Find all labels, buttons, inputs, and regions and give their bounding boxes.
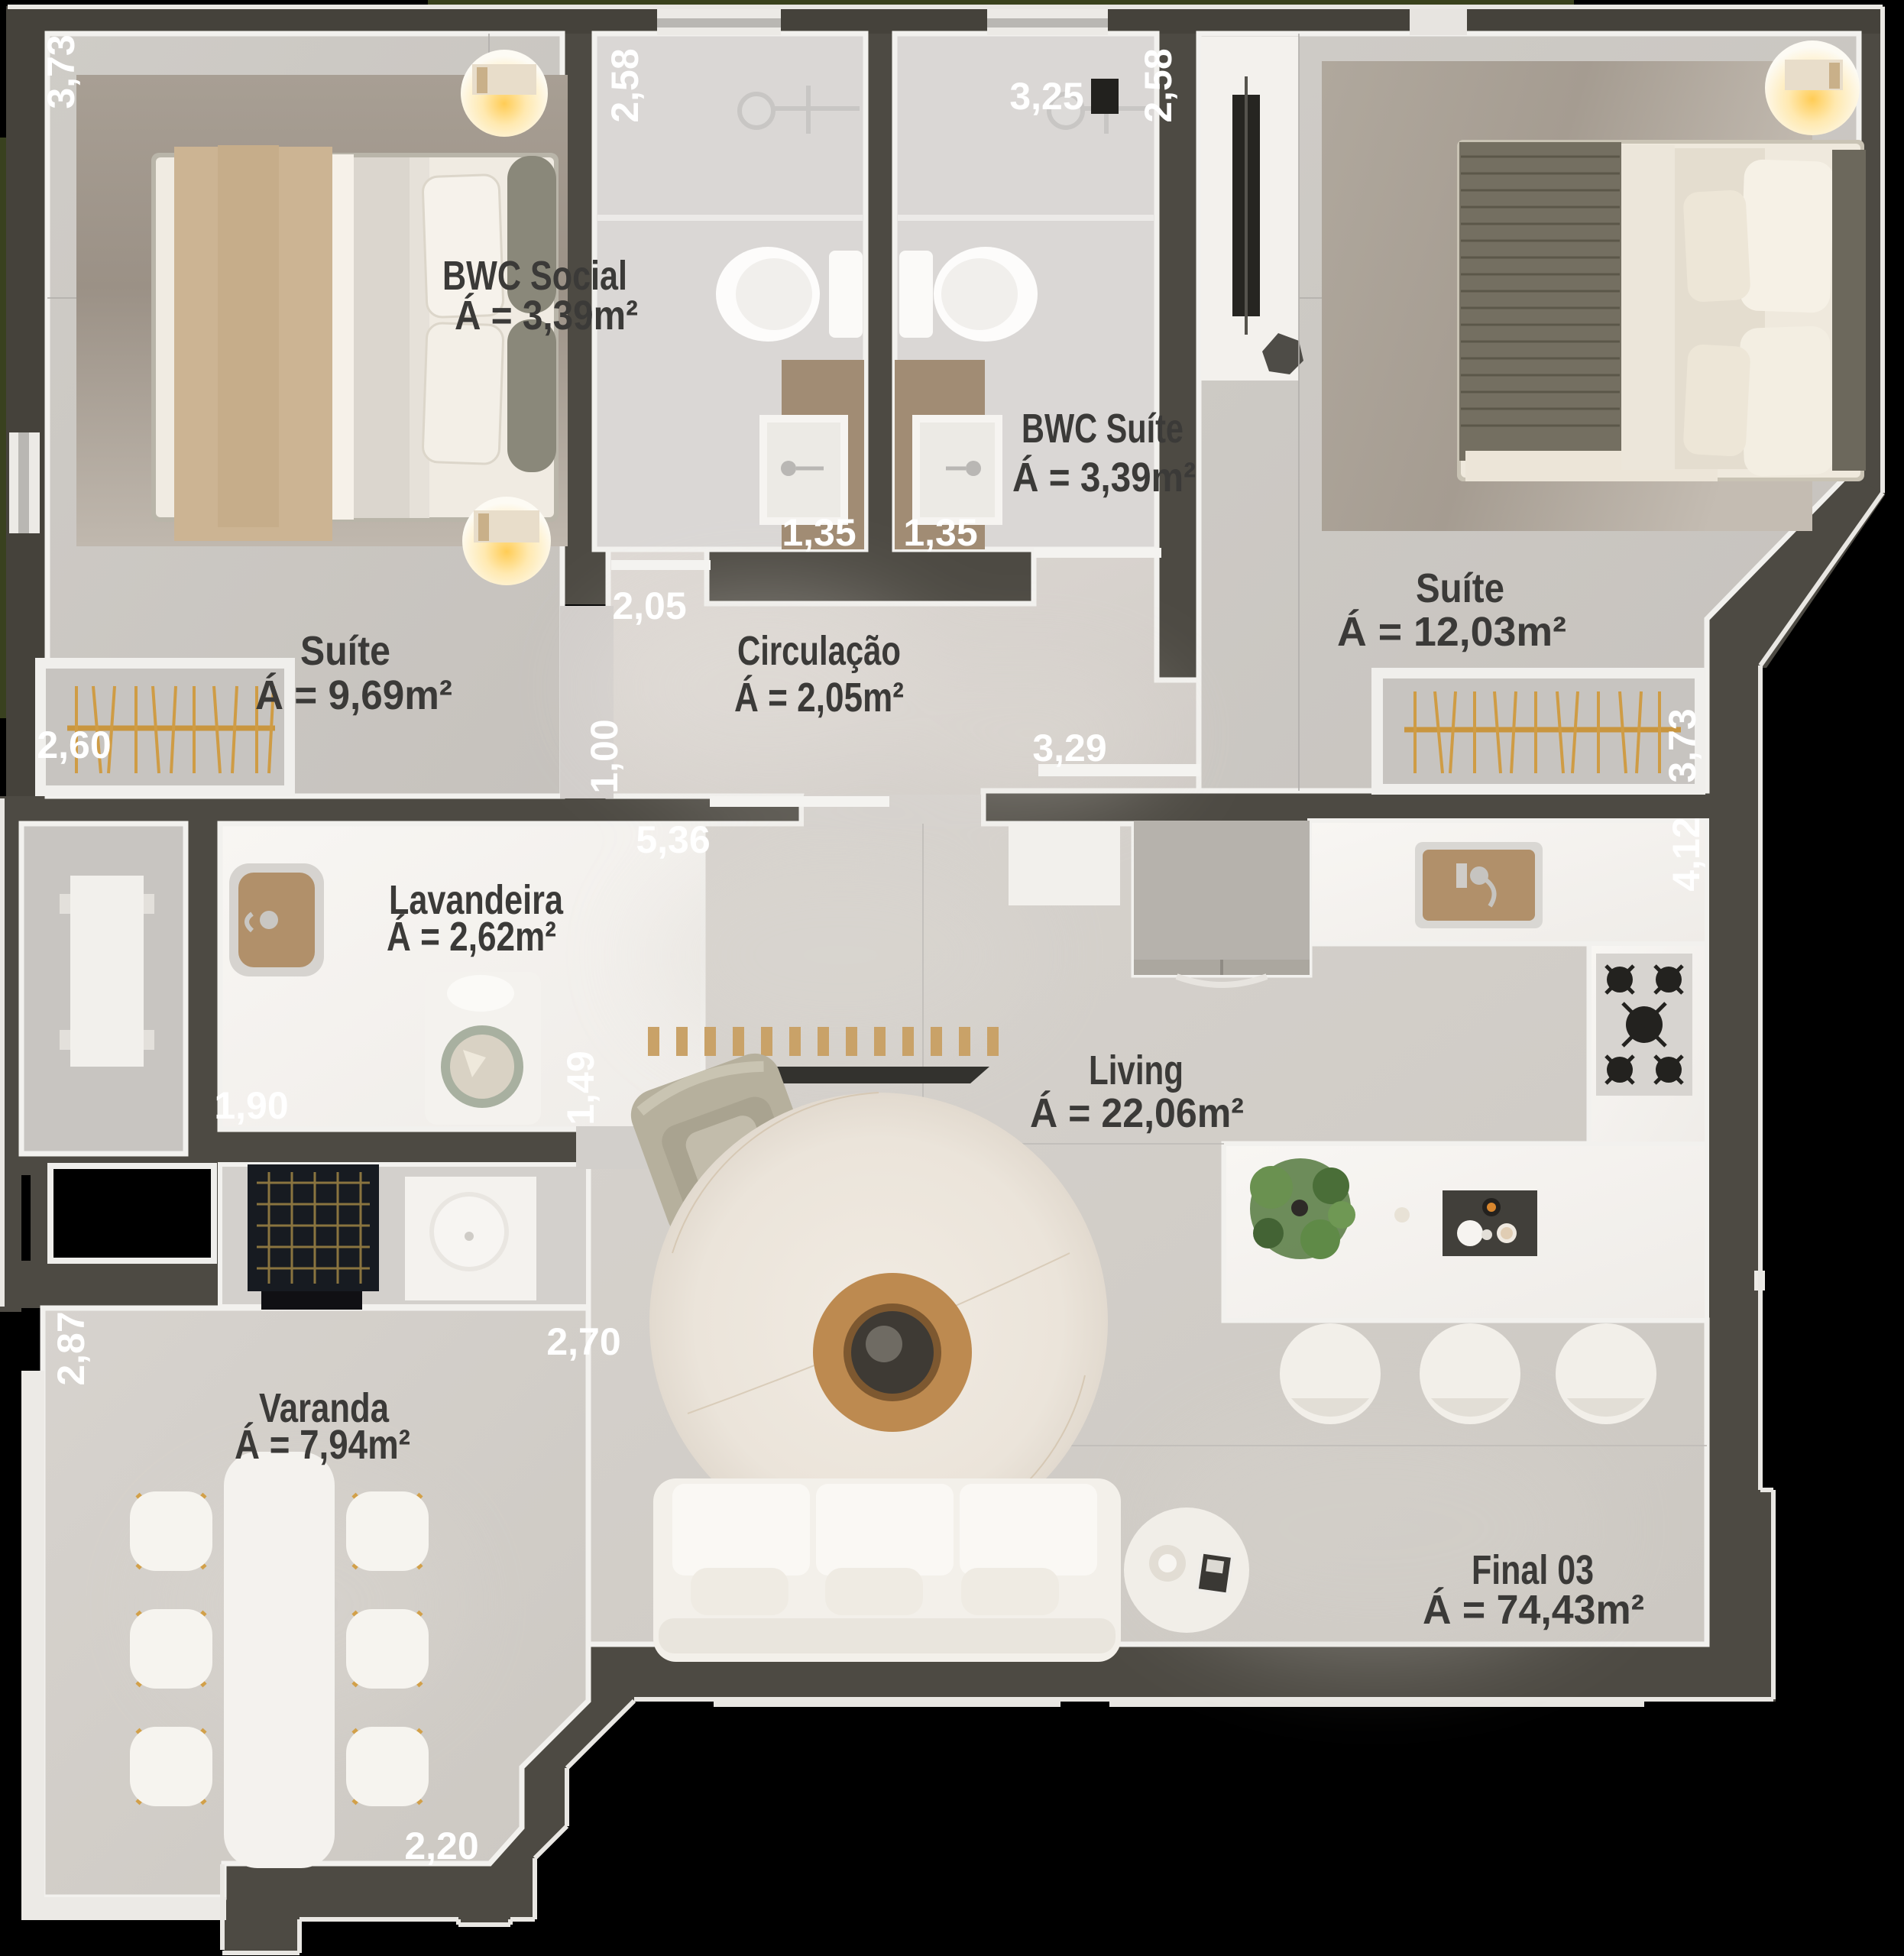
svg-text:3,29: 3,29 (1032, 727, 1106, 769)
svg-text:5,36: 5,36 (636, 818, 710, 861)
svg-text:Suíte: Suíte (300, 628, 390, 674)
svg-text:BWC Social: BWC Social (442, 253, 627, 299)
svg-text:1,49: 1,49 (559, 1051, 602, 1125)
svg-text:2,70: 2,70 (546, 1320, 620, 1363)
svg-text:Living: Living (1089, 1048, 1184, 1093)
svg-text:2,87: 2,87 (50, 1311, 92, 1385)
svg-text:1,35: 1,35 (903, 511, 977, 554)
svg-text:4,12: 4,12 (1665, 817, 1708, 891)
svg-text:1,00: 1,00 (583, 719, 626, 793)
svg-text:Circulação: Circulação (737, 628, 901, 674)
svg-text:3,25: 3,25 (1009, 75, 1083, 118)
svg-text:2,05: 2,05 (612, 585, 686, 627)
svg-text:Á = 74,43m²: Á = 74,43m² (1423, 1587, 1644, 1633)
svg-text:2,60: 2,60 (37, 724, 111, 766)
svg-text:Suíte: Suíte (1416, 565, 1504, 611)
svg-text:Final 03: Final 03 (1472, 1547, 1594, 1593)
svg-text:Á = 3,39m²: Á = 3,39m² (1012, 455, 1196, 500)
svg-text:1,35: 1,35 (782, 511, 856, 554)
svg-text:Á = 12,03m²: Á = 12,03m² (1337, 609, 1566, 655)
svg-text:Á = 22,06m²: Á = 22,06m² (1030, 1090, 1244, 1136)
svg-text:Á = 9,69m²: Á = 9,69m² (255, 672, 452, 718)
svg-text:Á = 2,62m²: Á = 2,62m² (387, 914, 556, 960)
svg-text:Á = 7,94m²: Á = 7,94m² (235, 1422, 410, 1468)
svg-text:2,20: 2,20 (404, 1825, 478, 1867)
svg-text:1,90: 1,90 (214, 1084, 288, 1127)
svg-text:2,58: 2,58 (604, 48, 646, 122)
svg-text:2,58: 2,58 (1137, 48, 1180, 122)
svg-text:Á = 3,39m²: Á = 3,39m² (455, 293, 638, 338)
svg-text:Á = 2,05m²: Á = 2,05m² (734, 675, 904, 721)
svg-text:3,73: 3,73 (1661, 708, 1704, 782)
svg-text:BWC Suíte: BWC Suíte (1022, 406, 1184, 452)
svg-text:3,73: 3,73 (40, 34, 83, 108)
